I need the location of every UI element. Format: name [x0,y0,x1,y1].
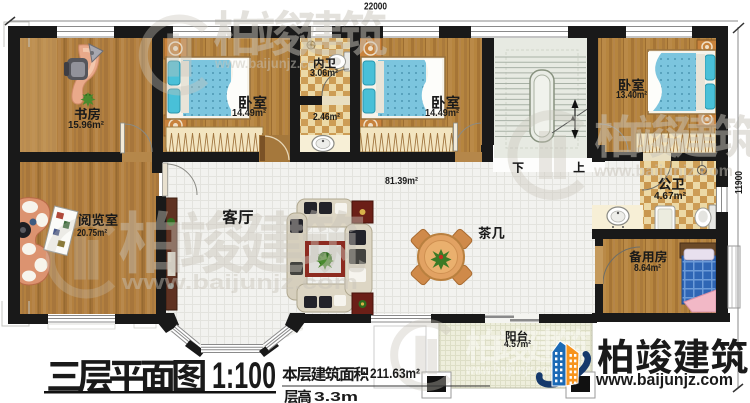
svg-text:11900: 11900 [734,171,745,194]
svg-text:22000: 22000 [364,2,387,13]
svg-text:www.baijunjz.com: www.baijunjz.com [465,362,558,377]
svg-text::: : [307,389,311,403]
svg-text::: : [362,366,366,381]
svg-text:211.63m²: 211.63m² [370,366,420,381]
svg-text:3.3m: 3.3m [314,389,358,403]
svg-text:14.49m²: 14.49m² [425,107,459,119]
svg-text:8.64m²: 8.64m² [634,263,662,274]
svg-text:1:100: 1:100 [212,355,276,396]
svg-text:3.06m²: 3.06m² [310,68,339,79]
svg-text:13.40m²: 13.40m² [616,89,647,101]
svg-text:www.baijunjz.com: www.baijunjz.com [595,370,733,389]
svg-text:www.baijunjz.com: www.baijunjz.com [593,163,733,180]
svg-text:2.46m²: 2.46m² [313,112,341,123]
svg-text:4.67m²: 4.67m² [654,191,687,202]
svg-text:20.75m²: 20.75m² [77,227,107,239]
svg-text:15.96m²: 15.96m² [68,119,104,131]
svg-text:www.baijunjz.com: www.baijunjz.com [121,272,358,294]
svg-text:14.49m²: 14.49m² [232,107,266,119]
svg-text:81.39m²: 81.39m² [385,175,418,187]
svg-text:4.57m²: 4.57m² [504,339,531,350]
